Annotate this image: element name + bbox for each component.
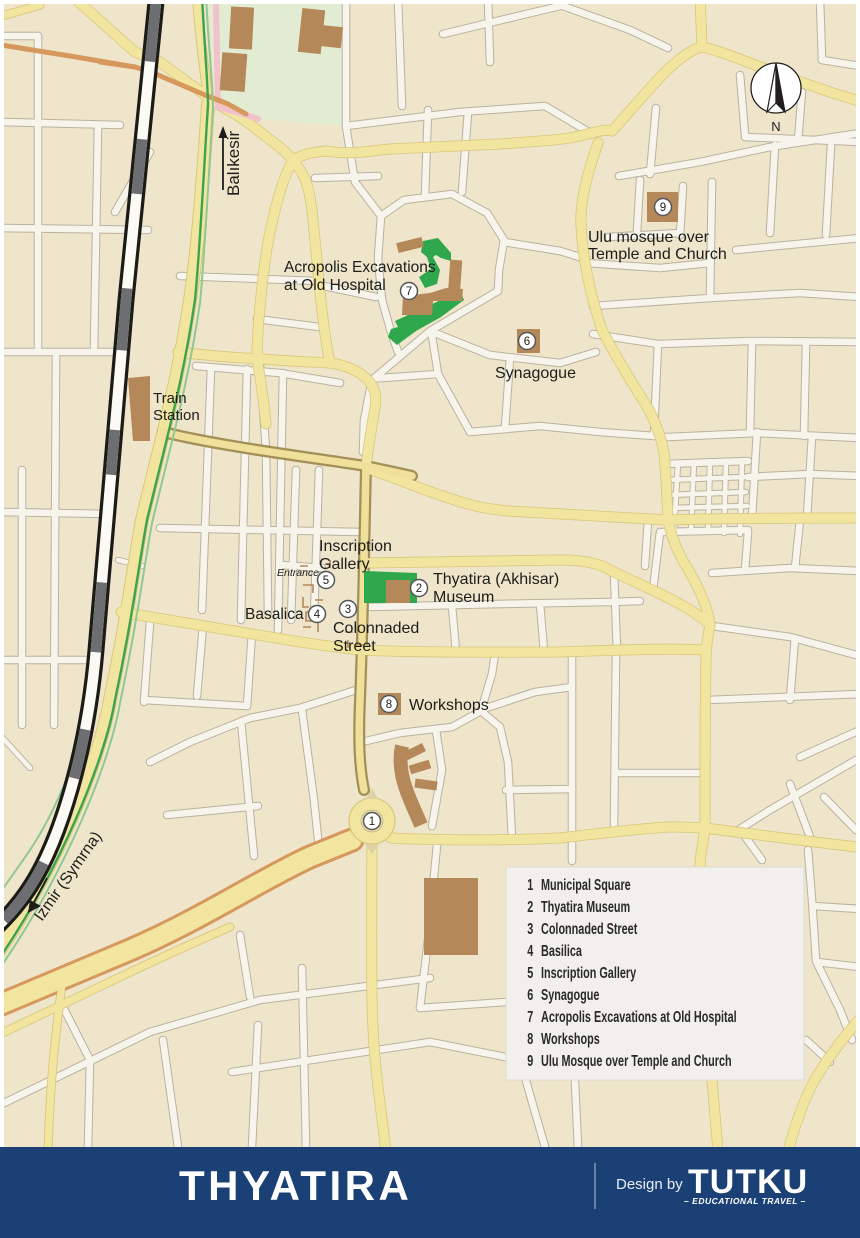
svg-text:2: 2 [527, 898, 533, 915]
svg-text:Ulu Mosque over Temple and Chu: Ulu Mosque over Temple and Church [541, 1052, 732, 1069]
svg-text:Thyatira Museum: Thyatira Museum [541, 898, 630, 915]
svg-text:5: 5 [527, 964, 533, 981]
svg-text:Entrance: Entrance [277, 567, 319, 579]
svg-text:Station: Station [153, 407, 200, 424]
svg-text:Thyatira (Akhisar): Thyatira (Akhisar) [433, 571, 559, 588]
svg-text:6: 6 [524, 336, 530, 348]
svg-text:Acropolis Excavations at Old H: Acropolis Excavations at Old Hospital [541, 1008, 737, 1025]
svg-text:7: 7 [406, 286, 412, 298]
svg-text:9: 9 [660, 202, 666, 214]
svg-text:Design by: Design by [616, 1176, 683, 1193]
svg-text:Synagogue: Synagogue [541, 986, 599, 1003]
svg-text:8: 8 [386, 699, 392, 711]
svg-text:Gallery: Gallery [319, 556, 370, 573]
svg-text:at Old Hospital: at Old Hospital [284, 277, 386, 294]
svg-text:Colonnaded: Colonnaded [333, 620, 419, 637]
svg-text:Municipal Square: Municipal Square [541, 876, 631, 893]
svg-text:5: 5 [323, 575, 329, 587]
svg-text:7: 7 [527, 1008, 533, 1025]
svg-text:Museum: Museum [433, 589, 494, 606]
svg-text:Basilica: Basilica [541, 942, 582, 959]
svg-text:3: 3 [527, 920, 533, 937]
svg-text:1: 1 [369, 816, 375, 828]
svg-text:Basalica: Basalica [245, 606, 304, 623]
svg-text:Workshops: Workshops [409, 697, 489, 714]
svg-text:Acropolis Excavations: Acropolis Excavations [284, 259, 436, 276]
svg-text:Workshops: Workshops [541, 1030, 600, 1047]
svg-text:N: N [771, 119, 780, 134]
svg-text:2: 2 [416, 583, 422, 595]
svg-text:THYATIRA: THYATIRA [179, 1162, 412, 1209]
svg-text:1: 1 [527, 876, 533, 893]
svg-text:Balıkesir: Balıkesir [224, 130, 243, 196]
svg-text:8: 8 [527, 1030, 533, 1047]
svg-text:Colonnaded Street: Colonnaded Street [541, 920, 638, 937]
svg-text:Synagogue: Synagogue [495, 365, 576, 382]
svg-text:Temple and Church: Temple and Church [588, 246, 727, 263]
svg-text:Inscription: Inscription [319, 538, 392, 555]
svg-text:Ulu mosque over: Ulu mosque over [588, 229, 710, 246]
svg-text:Train: Train [153, 390, 187, 407]
svg-text:4: 4 [314, 609, 321, 621]
svg-text:Street: Street [333, 638, 376, 655]
svg-text:4: 4 [527, 942, 533, 959]
svg-text:9: 9 [527, 1052, 533, 1069]
svg-text:3: 3 [345, 604, 351, 616]
svg-text:Inscription Gallery: Inscription Gallery [541, 964, 637, 981]
svg-text:– EDUCATIONAL TRAVEL –: – EDUCATIONAL TRAVEL – [684, 1196, 806, 1206]
svg-text:6: 6 [527, 986, 533, 1003]
